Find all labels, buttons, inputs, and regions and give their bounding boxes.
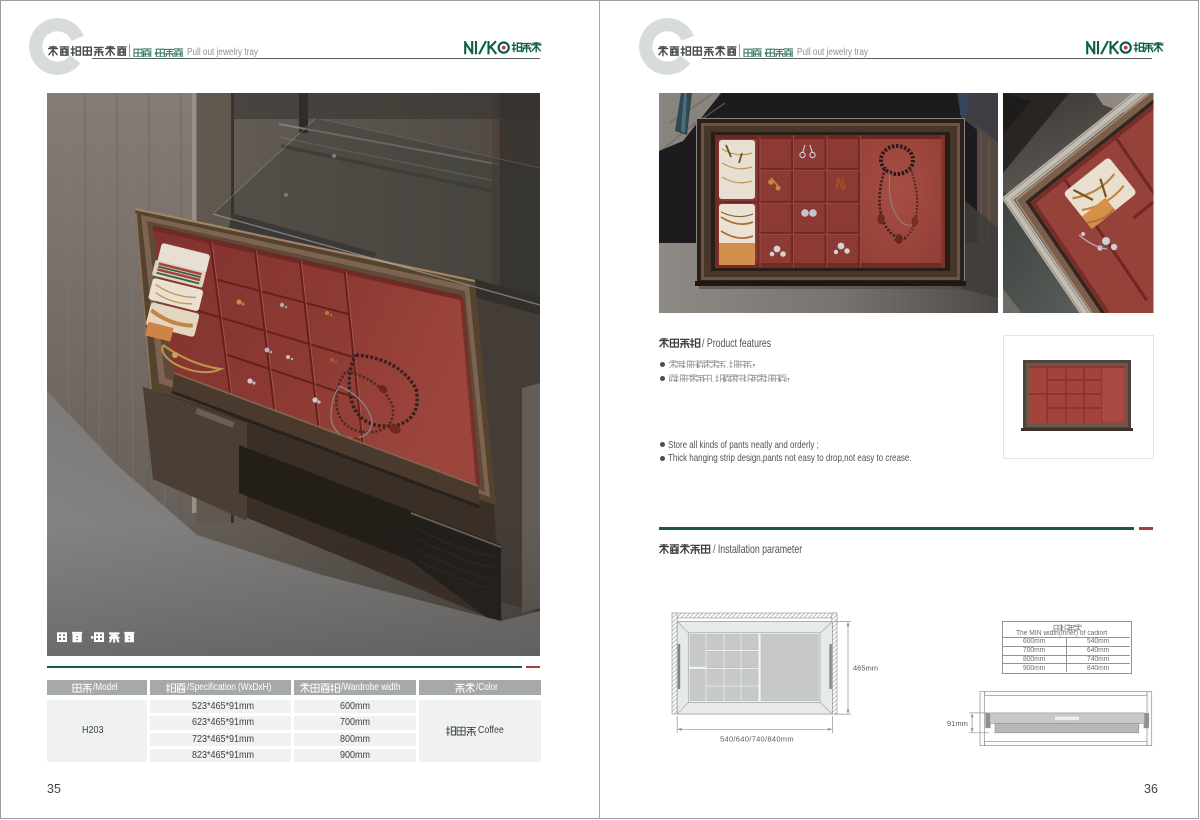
svg-text:91mm: 91mm xyxy=(947,719,968,728)
svg-text:465mm: 465mm xyxy=(853,664,878,673)
svg-text:540/640/740/840mm: 540/640/740/840mm xyxy=(720,735,794,744)
svg-text:®: ® xyxy=(540,42,543,47)
svg-text:®: ® xyxy=(1162,42,1165,47)
